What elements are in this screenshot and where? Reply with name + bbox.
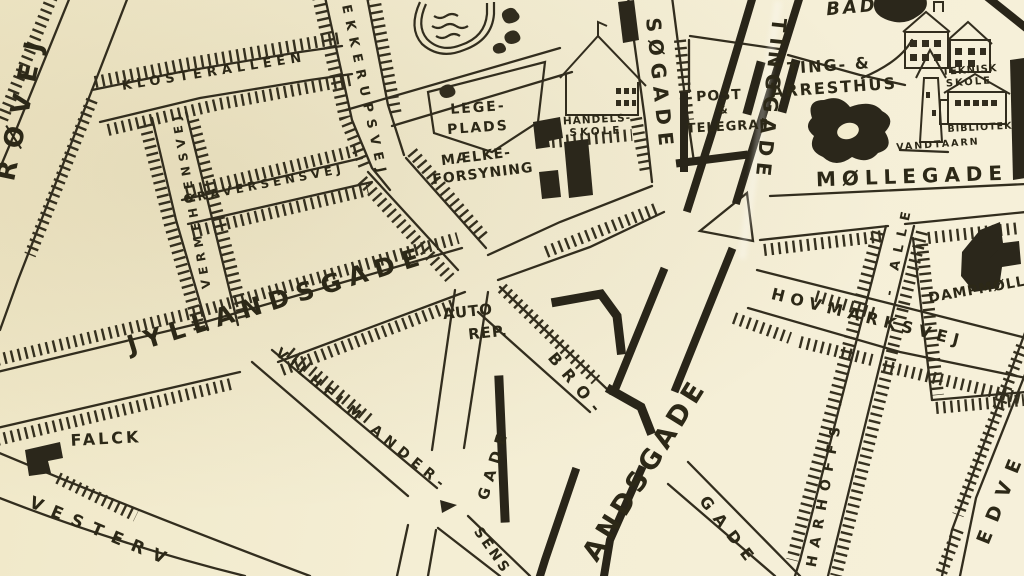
place-label-legeplads-1: LEGE- [450, 99, 506, 117]
junction-mark [440, 500, 457, 513]
vandtaarn-shaft [920, 78, 942, 142]
falck-building [25, 442, 63, 476]
teknisk-chimney [934, 2, 943, 12]
place-label-legeplads-2: PLADS [447, 119, 510, 137]
handelsskole-roof [560, 36, 646, 86]
edge-block [1010, 58, 1024, 180]
sogade-block [618, 0, 639, 43]
place-label-rep: REP. [467, 323, 508, 342]
handelsskole-flag [598, 22, 607, 36]
street-label-mollegade: MØLLEGADE [816, 163, 1009, 190]
place-label-falck: FALCK [70, 429, 142, 449]
place-label-post-amp: & [718, 104, 728, 115]
handelsskole-body [566, 74, 638, 115]
place-label-handelsskole-2: SKOLE [569, 125, 623, 138]
maelke-block-2 [564, 139, 593, 198]
place-label-bad: BAD [826, 0, 879, 19]
maelke-block-3 [539, 170, 561, 199]
city-map: RØVEJ KLOSTERALLÉEN EKKERUPSVEJ VERMEHRE… [0, 0, 1024, 576]
maelke-block-1 [533, 117, 563, 149]
place-label-post: POST [696, 88, 742, 104]
